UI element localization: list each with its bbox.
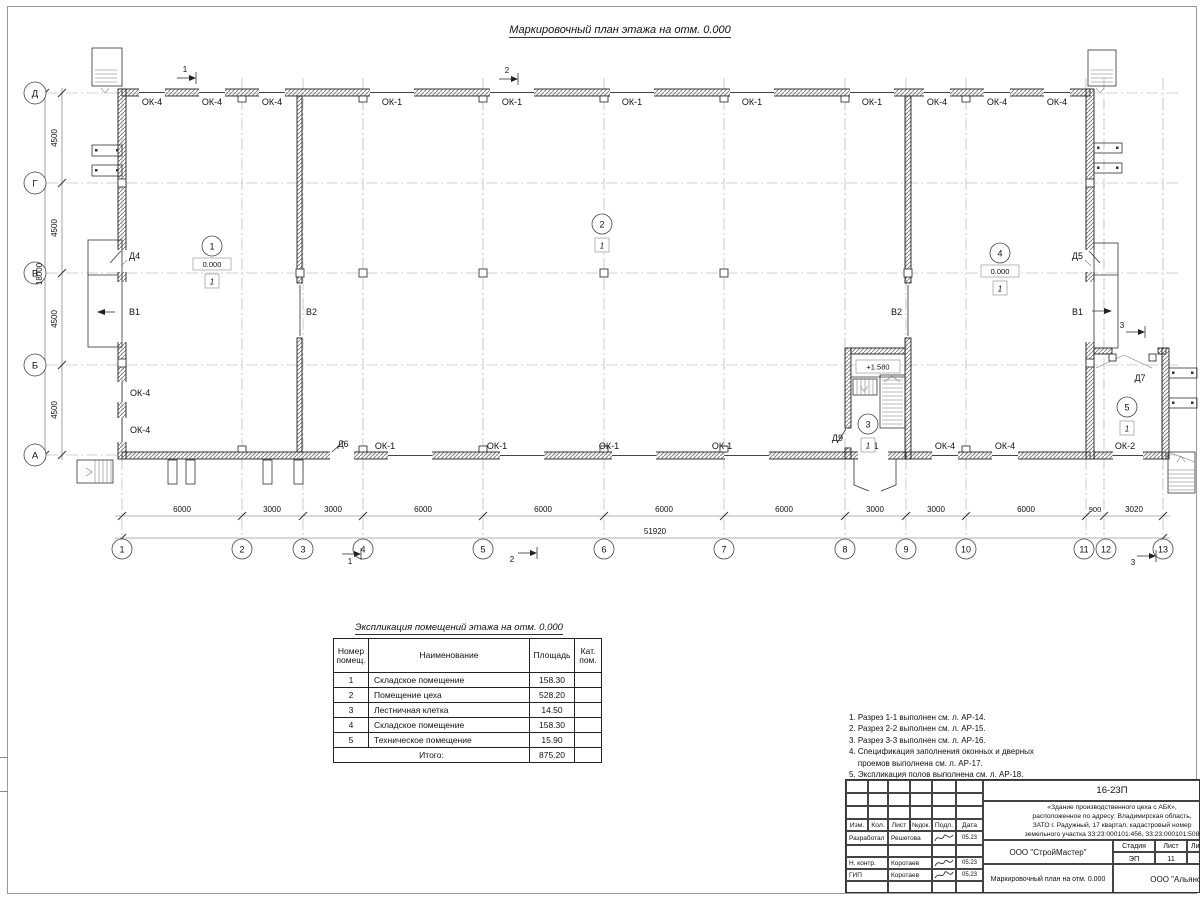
sheets-header: Листов xyxy=(1187,840,1200,852)
window-label: ОК-4 xyxy=(987,97,1007,107)
rev-cell xyxy=(868,793,888,806)
signature-glyph xyxy=(933,870,955,881)
room-number: 1 xyxy=(209,242,214,252)
grid-row-label: Г xyxy=(32,179,37,190)
rev-header: Лист xyxy=(888,819,910,831)
window-label: ОК-4 xyxy=(995,441,1015,451)
room-number: 3 xyxy=(865,420,870,430)
table-total-row: Итого:875.20 xyxy=(334,748,602,763)
note-line: 4. Спецификация заполнения оконных и две… xyxy=(849,746,1179,757)
dim-label: 3000 xyxy=(866,505,884,514)
window-label: ОК-4 xyxy=(130,425,150,435)
room-schedule: Экспликация помещений этажа на отм. 0.00… xyxy=(333,617,585,763)
grid-bubbles: Д Г В Б А 1 2 3 4 5 6 7 8 9 10 11 12 13 xyxy=(24,82,1173,559)
exterior-elements xyxy=(77,48,1197,493)
section-label: 2 xyxy=(505,66,510,75)
table-row: 3Лестничная клетка14.50 xyxy=(334,703,602,718)
rev-cell xyxy=(932,780,956,793)
rev-cell xyxy=(910,793,932,806)
title-block: Изм. Кол. Лист №док. Подл. Дата Разработ… xyxy=(845,779,1200,893)
elevation-mark: 0.000 xyxy=(991,267,1010,276)
dim-label: 6000 xyxy=(775,505,793,514)
rev-cell xyxy=(846,806,868,819)
door-label: Д7 xyxy=(1134,373,1145,383)
contractor-cell: ООО "Альянс" xyxy=(1113,864,1200,893)
section-label: 3 xyxy=(1131,558,1136,567)
grid-col-label: 11 xyxy=(1079,545,1088,555)
window-label: ОК-4 xyxy=(262,97,282,107)
grid-col-label: 10 xyxy=(961,545,971,555)
total-label: Итого: xyxy=(334,748,530,763)
rev-header: Подл. xyxy=(932,819,956,831)
window-label: ОК-4 xyxy=(1047,97,1067,107)
format-tick xyxy=(0,791,8,792)
dim-label: 4500 xyxy=(50,219,59,237)
object-description: «Здание производственного цеха с АБК», р… xyxy=(983,801,1200,840)
gate-label: В2 xyxy=(891,307,902,317)
grid-col-label: 13 xyxy=(1158,545,1168,555)
window-label: ОК-4 xyxy=(202,97,222,107)
door-label: Д9 xyxy=(832,433,843,443)
dimension-texts: 4500 4500 4500 4500 18000 6000 3000 3000… xyxy=(35,129,1143,536)
drawing-title-cell: Маркировочный план на отм. 0.000 xyxy=(983,864,1113,893)
window-label: ОК-4 xyxy=(142,97,162,107)
rev-header: Изм. xyxy=(846,819,868,831)
col-header-num: Номер помещ. xyxy=(334,639,369,673)
grid-col-label: 12 xyxy=(1101,545,1111,555)
dimension-lines xyxy=(41,88,1170,542)
note-line: 3. Разрез 3-3 выполнен см. л. АР-16. xyxy=(849,735,1179,746)
grid-col-label: 5 xyxy=(480,545,485,555)
window-label: ОК-1 xyxy=(862,97,882,107)
col-header-cat: Кат. пом. xyxy=(575,639,602,673)
grid-col-label: 6 xyxy=(601,545,606,555)
gate-label: В1 xyxy=(129,307,140,317)
dim-total-label: 18000 xyxy=(35,262,44,285)
dim-label: 4500 xyxy=(50,401,59,419)
window-label: ОК-2 xyxy=(1115,441,1135,451)
signature xyxy=(932,857,956,869)
rev-cell xyxy=(868,806,888,819)
dim-total-label: 51920 xyxy=(644,527,667,536)
window-label: ОК-1 xyxy=(742,97,762,107)
sign-date: 05.23 xyxy=(956,857,983,869)
sign-date: 05.23 xyxy=(956,869,983,881)
dim-label: 900 xyxy=(1089,505,1102,514)
signature xyxy=(932,831,956,845)
note-line: проемов выполнена см. л. АР-17. xyxy=(849,758,1179,769)
window-label: ОК-1 xyxy=(622,97,642,107)
rev-cell xyxy=(846,793,868,806)
rev-cell xyxy=(888,806,910,819)
floor-type-mark: 1 xyxy=(600,242,604,251)
floor-plan: Д Г В Б А 1 2 3 4 5 6 7 8 9 10 11 12 13 … xyxy=(0,0,1200,600)
rev-cell xyxy=(888,780,910,793)
sign-name: Коротаев xyxy=(888,857,932,869)
door-label: Д6 xyxy=(337,439,348,449)
door-label: Д4 xyxy=(129,251,140,261)
sign-role: Н. контр. xyxy=(846,857,888,869)
grid-col-label: 3 xyxy=(300,545,305,555)
grid-col-label: 8 xyxy=(842,545,847,555)
grid-col-label: 7 xyxy=(721,545,726,555)
object-line: ЗАТО г. Радужный, 17 квартал, кадастровы… xyxy=(1033,821,1192,830)
window-label: ОК-1 xyxy=(599,441,619,451)
table-row: 5Техническое помещение15.90 xyxy=(334,733,602,748)
sign-role xyxy=(846,845,888,857)
col-header-area: Площадь xyxy=(530,639,575,673)
table-row: 2Помещение цеха528.20 xyxy=(334,688,602,703)
total-value: 875.20 xyxy=(530,748,575,763)
dim-label: 3000 xyxy=(927,505,945,514)
room-number: 4 xyxy=(997,249,1002,259)
window-label: ОК-4 xyxy=(935,441,955,451)
rev-cell xyxy=(846,780,868,793)
note-line: 1. Разрез 1-1 выполнен см. л. АР-14. xyxy=(849,712,1179,723)
rev-cell xyxy=(932,793,956,806)
rev-cell xyxy=(910,806,932,819)
sign-role: Разработал xyxy=(846,831,888,845)
section-label: 1 xyxy=(348,557,353,566)
dim-label: 6000 xyxy=(173,505,191,514)
sheet-value: 11 xyxy=(1155,852,1187,864)
drawing-sheet: { "title": "Маркировочный план этажа на … xyxy=(0,0,1200,900)
notes-list: 1. Разрез 1-1 выполнен см. л. АР-14. 2. … xyxy=(849,712,1179,780)
sign-name: Решетова xyxy=(888,831,932,845)
grid-col-label: 9 xyxy=(903,545,908,555)
sign-name: Коротаев xyxy=(888,869,932,881)
floor-type-mark: 1 xyxy=(1125,425,1129,434)
room-number: 2 xyxy=(599,220,604,230)
signature-glyph xyxy=(933,858,955,869)
rev-cell xyxy=(956,806,983,819)
section-label: 2 xyxy=(510,555,515,564)
dim-label: 6000 xyxy=(534,505,552,514)
grid-row-label: А xyxy=(32,451,39,462)
room-schedule-title: Экспликация помещений этажа на отм. 0.00… xyxy=(333,617,585,635)
sign-role: ГИП xyxy=(846,869,888,881)
floor-type-mark: 1 xyxy=(998,285,1002,294)
stage-header: Стадия xyxy=(1113,840,1155,852)
window-label: ОК-1 xyxy=(375,441,395,451)
dim-label: 4500 xyxy=(50,129,59,147)
object-line: расположенное по адресу: Владимирская об… xyxy=(1032,812,1191,821)
section-label: 1 xyxy=(183,65,188,74)
sign-date: 05.23 xyxy=(956,831,983,845)
rev-cell xyxy=(910,780,932,793)
window-label: ОК-4 xyxy=(130,388,150,398)
dim-label: 6000 xyxy=(1017,505,1035,514)
window-label: ОК-1 xyxy=(487,441,507,451)
gate-label: В2 xyxy=(306,307,317,317)
room-number: 5 xyxy=(1124,403,1129,413)
col-header-name: Наименование xyxy=(369,639,530,673)
dim-label: 6000 xyxy=(414,505,432,514)
landing-elevation-mark: +1.580 xyxy=(866,363,889,372)
grid-row-label: Д xyxy=(32,89,39,100)
door-label: Д5 xyxy=(1072,251,1083,261)
rev-header: Дата xyxy=(956,819,983,831)
window-label: ОК-1 xyxy=(502,97,522,107)
elevation-mark: 0.000 xyxy=(203,260,222,269)
section-marks: 1 2 1 2 3 3 xyxy=(177,65,1156,567)
rev-cell xyxy=(956,780,983,793)
rev-cell xyxy=(956,793,983,806)
signature xyxy=(932,869,956,881)
window-label: ОК-1 xyxy=(382,97,402,107)
rev-cell xyxy=(932,806,956,819)
rev-cell xyxy=(888,793,910,806)
format-tick xyxy=(0,757,8,758)
sheets-value: 1 xyxy=(1187,852,1200,864)
dim-label: 3000 xyxy=(324,505,342,514)
room-table: Номер помещ. Наименование Площадь Кат. п… xyxy=(333,638,602,763)
dim-label: 3000 xyxy=(263,505,281,514)
table-row: 4Складское помещение158.30 xyxy=(334,718,602,733)
signature-glyph xyxy=(933,832,955,844)
rev-header: Кол. xyxy=(868,819,888,831)
object-line: «Здание производственного цеха с АБК», xyxy=(1047,803,1176,812)
design-company: ООО "СтройМастер" xyxy=(983,840,1113,864)
room-markers: 1 0.000 1 2 1 3 1 4 0.000 1 5 1 +1.580 xyxy=(193,214,1137,452)
floor-type-mark: 1 xyxy=(866,442,870,451)
stage-value: ЭП xyxy=(1113,852,1155,864)
grid-col-label: 2 xyxy=(239,545,244,555)
window-label: ОК-4 xyxy=(927,97,947,107)
dim-label: 4500 xyxy=(50,310,59,328)
rev-cell xyxy=(868,780,888,793)
grid-row-label: Б xyxy=(32,361,38,372)
rev-header: №док. xyxy=(910,819,932,831)
dim-label: 3020 xyxy=(1125,505,1143,514)
section-label: 3 xyxy=(1120,321,1125,330)
grid-col-label: 1 xyxy=(119,545,124,555)
floor-type-mark: 1 xyxy=(210,278,214,287)
gate-label: В1 xyxy=(1072,307,1083,317)
dim-label: 6000 xyxy=(655,505,673,514)
table-row: 1Складское помещение158.30 xyxy=(334,673,602,688)
sheet-header: Лист xyxy=(1155,840,1187,852)
object-line: земельного участка 33:23:000101:456, 33:… xyxy=(1025,830,1200,839)
table-header-row: Номер помещ. Наименование Площадь Кат. п… xyxy=(334,639,602,673)
axis-lines xyxy=(46,78,1180,540)
window-label: ОК-1 xyxy=(712,441,732,451)
columns xyxy=(118,96,1094,452)
note-line: 2. Разрез 2-2 выполнен см. л. АР-15. xyxy=(849,723,1179,734)
doc-number: 16-23П xyxy=(983,780,1200,801)
